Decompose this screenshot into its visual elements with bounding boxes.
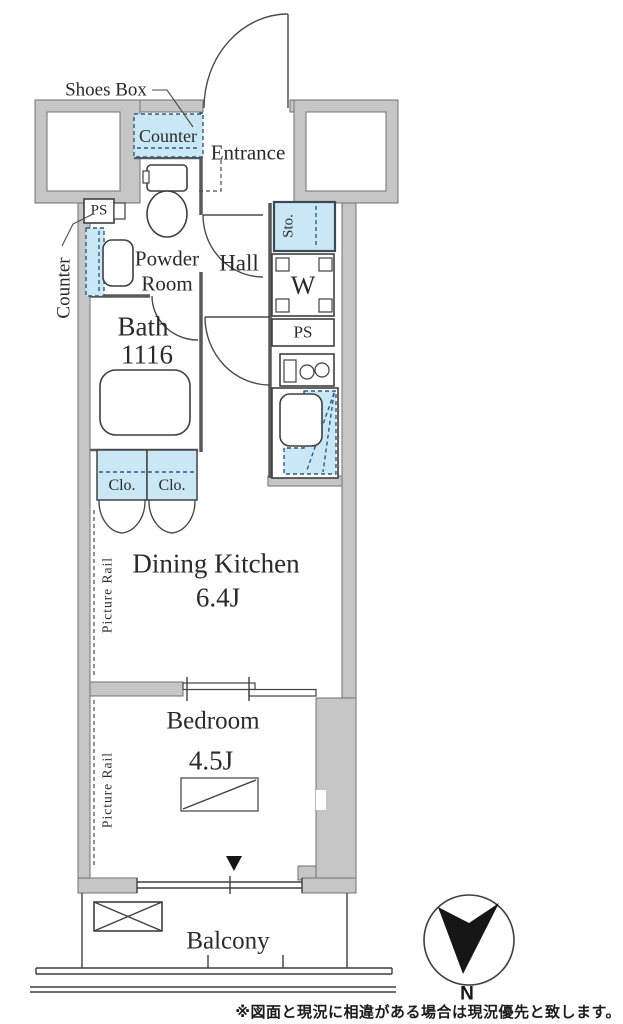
- right-wall-notch: [316, 790, 326, 810]
- window-marker-triangle: [226, 856, 242, 871]
- kitchen-sink: [280, 394, 322, 446]
- powder-room-label-line2: Room: [141, 274, 192, 295]
- floorplan-drawing: [0, 0, 623, 1024]
- burner2: [315, 363, 329, 377]
- hall-door-swing: [205, 317, 270, 385]
- sliding-panel2: [249, 690, 316, 697]
- compass: [424, 895, 514, 985]
- bedroom-size-label: 4.5J: [189, 748, 233, 775]
- storage-label: Sto.: [282, 214, 297, 238]
- bedroom-label: Bedroom: [166, 709, 259, 734]
- ps-right-label: PS: [294, 324, 313, 341]
- closet1-fold-door: [99, 500, 122, 533]
- kitchen: [272, 354, 338, 478]
- burner1: [300, 365, 314, 379]
- entrance-label: Entrance: [211, 143, 286, 164]
- bath-size-label: 1116: [121, 342, 173, 369]
- right-wall-bedroom: [316, 698, 356, 880]
- floorplan-page: Shoes Box Counter Entrance PS Counter Po…: [0, 0, 623, 1024]
- ps-left-return: [114, 203, 125, 219]
- picture-rail-dk-label: Picture Rail: [100, 557, 114, 633]
- closet1-label: Clo.: [108, 478, 135, 494]
- right-void: [306, 112, 386, 191]
- left-wall: [78, 203, 90, 880]
- partition-wall-left: [90, 682, 183, 696]
- washbasin: [103, 240, 133, 286]
- ps-left-label: PS: [91, 204, 108, 219]
- toilet-handle: [143, 171, 149, 183]
- powder-room-label-line1: Powder: [135, 249, 199, 270]
- sliding-partition: [183, 677, 316, 701]
- disclaimer-note: ※図面と現況に相違がある場合は現況優先と致します。: [235, 1001, 621, 1022]
- left-counter-strip: [86, 228, 104, 296]
- hall-label: Hall: [219, 252, 259, 275]
- bathtub: [100, 370, 190, 435]
- washer-label: W: [291, 273, 316, 299]
- balcony-label: Balcony: [186, 929, 269, 954]
- window-wall-left: [78, 878, 137, 893]
- closet2-label: Clo.: [158, 478, 185, 494]
- entrance-door-swing: [204, 14, 288, 108]
- closet2-fold-door: [149, 500, 172, 533]
- counter-left-label: Counter: [55, 257, 74, 318]
- right-wall-upper: [342, 203, 356, 698]
- toilet-tank: [147, 165, 187, 191]
- picture-rail-bedroom-label: Picture Rail: [100, 752, 114, 828]
- shoe-counter-label: Counter: [139, 127, 197, 145]
- bedroom-items: [137, 778, 302, 894]
- shoes-box-label: Shoes Box: [65, 81, 147, 100]
- dining-kitchen-label: Dining Kitchen: [132, 551, 299, 578]
- left-void: [47, 112, 120, 191]
- window-wall-right: [302, 878, 356, 893]
- bath-label: Bath: [118, 314, 169, 341]
- dining-kitchen-size-label: 6.4J: [196, 585, 240, 612]
- toilet-bowl: [147, 191, 187, 237]
- sliding-panel1: [183, 683, 255, 690]
